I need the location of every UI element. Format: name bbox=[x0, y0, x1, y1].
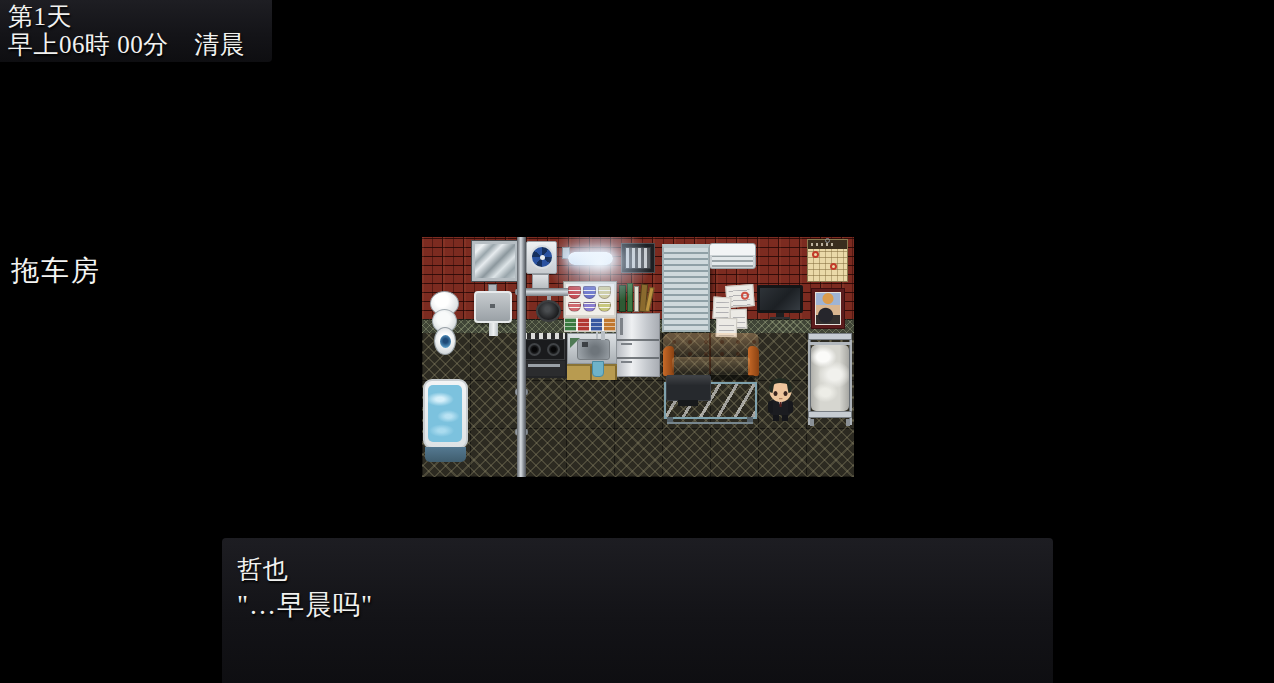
refrigerator bbox=[616, 313, 660, 377]
time-label: 早上06時 00分 清晨 bbox=[8, 31, 272, 59]
fridge-door-seam bbox=[617, 339, 659, 341]
fridge-handle bbox=[621, 343, 632, 345]
bed-leg bbox=[846, 419, 850, 426]
ventilation-fan bbox=[526, 241, 557, 274]
fan-hub bbox=[540, 255, 545, 260]
dialog-speaker-name: 哲也 bbox=[237, 555, 1053, 585]
stove-handle bbox=[528, 364, 560, 367]
bed-footboard bbox=[808, 411, 852, 418]
laptop-base bbox=[678, 400, 698, 406]
fridge-handle bbox=[620, 318, 623, 335]
water-pipe-horizontal bbox=[520, 288, 568, 296]
calendar-red-circle bbox=[830, 263, 837, 270]
fridge-handle bbox=[621, 361, 632, 363]
fridge-door-seam bbox=[617, 357, 659, 359]
day-label: 第1天 bbox=[8, 3, 272, 31]
table-rail bbox=[667, 422, 753, 424]
book-stack bbox=[619, 282, 653, 313]
cup-stack-pink bbox=[568, 302, 581, 312]
player-character bbox=[765, 375, 796, 422]
bathtub-water bbox=[428, 385, 462, 442]
dish-shelf bbox=[564, 282, 616, 317]
red-circle-mark bbox=[741, 291, 750, 300]
stove-front bbox=[523, 361, 565, 376]
bed-headboard bbox=[808, 333, 852, 340]
towel-shelf bbox=[564, 317, 616, 332]
book-spine bbox=[627, 283, 633, 312]
wall-notes bbox=[713, 285, 755, 338]
sink-pedestal bbox=[489, 323, 498, 336]
book-spine bbox=[619, 285, 626, 312]
stove-cooktop bbox=[523, 339, 565, 360]
bed-leg bbox=[810, 419, 814, 426]
sofa-seat bbox=[672, 357, 750, 374]
mirror bbox=[472, 241, 518, 281]
wall-sink bbox=[474, 284, 514, 337]
poster-image bbox=[815, 292, 841, 325]
stove-burner bbox=[547, 343, 560, 356]
hanging-frying-pan bbox=[536, 296, 562, 322]
sink-faucet bbox=[601, 331, 605, 340]
air-conditioner bbox=[709, 243, 756, 269]
window-blinds bbox=[662, 244, 710, 332]
dialog-window[interactable]: 哲也 "…早晨吗" bbox=[222, 538, 1053, 683]
bathtub bbox=[423, 379, 468, 463]
bowl-stack-cream bbox=[598, 286, 611, 299]
tv-screen bbox=[760, 288, 800, 310]
toilet-water bbox=[440, 335, 451, 348]
tv-base bbox=[770, 317, 790, 319]
toilet bbox=[430, 291, 460, 357]
poster bbox=[811, 288, 845, 329]
ac-louver bbox=[712, 256, 753, 267]
pan-disc bbox=[536, 300, 561, 322]
wall-calendar bbox=[807, 239, 848, 282]
bowl-stack-blue bbox=[583, 286, 596, 299]
bowl-stack-red bbox=[568, 286, 581, 299]
map-viewport[interactable] bbox=[422, 237, 854, 477]
cup-stack-yellow bbox=[598, 302, 611, 312]
dialog-text: "…早晨吗" bbox=[237, 589, 1053, 621]
time-window: 第1天 早上06時 00分 清晨 bbox=[0, 0, 272, 62]
pinned-note bbox=[712, 297, 731, 320]
metal-bed bbox=[808, 333, 853, 427]
calendar-red-circle bbox=[812, 251, 819, 258]
cup-stack-purple bbox=[583, 302, 596, 312]
stove-burner bbox=[528, 343, 541, 356]
fluorescent-light bbox=[568, 252, 613, 265]
leather-sofa bbox=[663, 333, 759, 380]
sink-drain bbox=[582, 342, 588, 347]
vent-slats bbox=[626, 248, 650, 268]
laptop bbox=[666, 375, 711, 401]
bed-blanket bbox=[811, 345, 849, 411]
gas-stove bbox=[523, 333, 567, 378]
game-screen: 第1天 早上06時 00分 清晨 拖车房 bbox=[0, 0, 1274, 683]
water-pipe-vertical bbox=[517, 237, 526, 477]
air-vent bbox=[622, 244, 654, 272]
glass-table bbox=[664, 378, 757, 424]
sink-drain bbox=[490, 304, 495, 308]
player-character-sprite bbox=[765, 375, 796, 422]
fan-duct bbox=[532, 274, 549, 289]
location-label: 拖车房 bbox=[11, 252, 101, 290]
calendar-hook bbox=[825, 238, 830, 243]
kitchen-sink bbox=[567, 333, 617, 364]
hand-towel bbox=[592, 361, 604, 377]
wall-tv bbox=[757, 285, 803, 319]
bathtub-base bbox=[425, 447, 466, 462]
